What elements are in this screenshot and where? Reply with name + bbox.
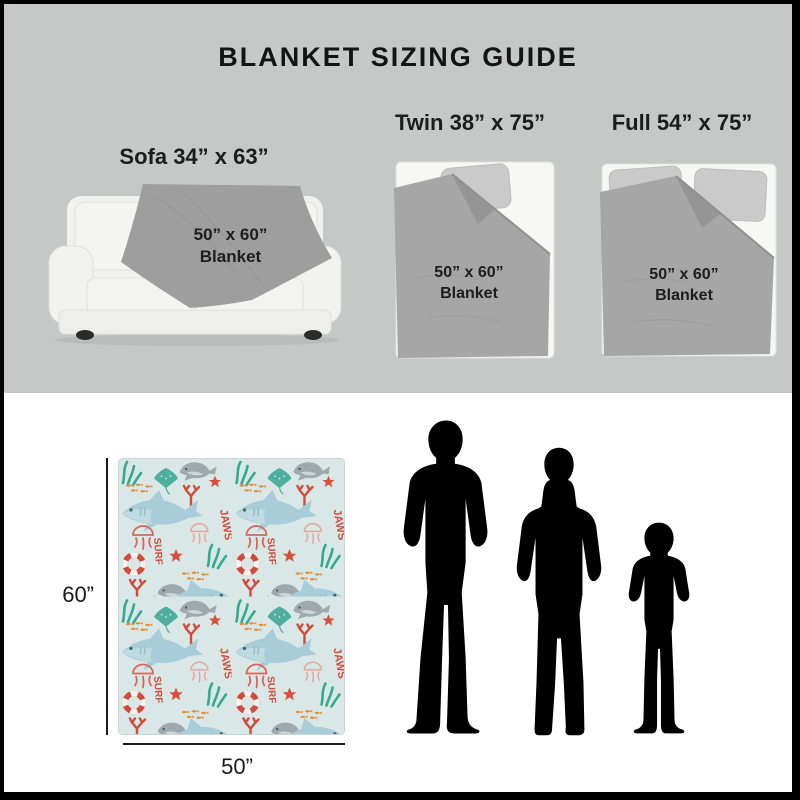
flat-blanket-cloth [119,459,345,735]
child-silhouette [625,522,693,736]
twin-blanket-size: 50” x 60” [395,263,543,284]
width-dimension-label: 50” [195,754,279,780]
sofa-base [59,310,331,334]
sofa-foot [76,330,94,340]
full-bed-illustration [598,158,780,362]
sofa-size-label: Sofa 34” x 63” [64,144,324,170]
page-title: BLANKET SIZING GUIDE [4,42,792,73]
man-silhouette [395,420,498,736]
flat-blanket-pattern: JAWS SURF [118,458,345,735]
sofa-shadow [55,334,339,346]
width-dimension-line [123,743,345,745]
woman-silhouette [515,447,603,736]
sofa-blanket-word: Blanket [158,246,303,268]
sofa-blanket-size: 50” x 60” [158,224,303,246]
sofa-foot [304,330,322,340]
height-dimension-label: 60” [32,582,94,608]
full-blanket-label: 50” x 60” Blanket [610,265,758,307]
twin-blanket-word: Blanket [395,284,543,305]
full-blanket-word: Blanket [610,286,758,307]
twin-bed-illustration [390,158,560,363]
sofa-blanket-label: 50” x 60” Blanket [158,224,303,268]
top-section: BLANKET SIZING GUIDE Sofa 34” x 63” Twin… [4,4,792,393]
twin-blanket-label: 50” x 60” Blanket [395,263,543,305]
full-size-label: Full 54” x 75” [557,110,792,136]
sizing-guide-canvas: BLANKET SIZING GUIDE Sofa 34” x 63” Twin… [4,4,792,792]
page-frame: BLANKET SIZING GUIDE Sofa 34” x 63” Twin… [0,0,800,800]
full-blanket-size: 50” x 60” [610,265,758,286]
height-dimension-line [106,458,108,735]
